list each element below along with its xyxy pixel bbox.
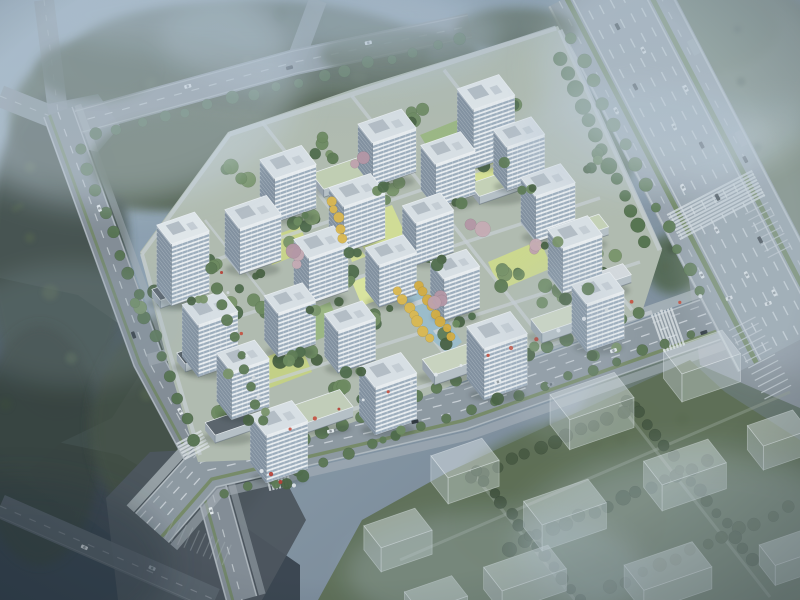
atmosphere: [0, 0, 800, 600]
residential-compound-render: Aerial architectural rendering of a resi…: [0, 0, 800, 600]
aerial-rendering: Aerial architectural rendering of a resi…: [0, 0, 800, 600]
vignette: [0, 0, 800, 600]
